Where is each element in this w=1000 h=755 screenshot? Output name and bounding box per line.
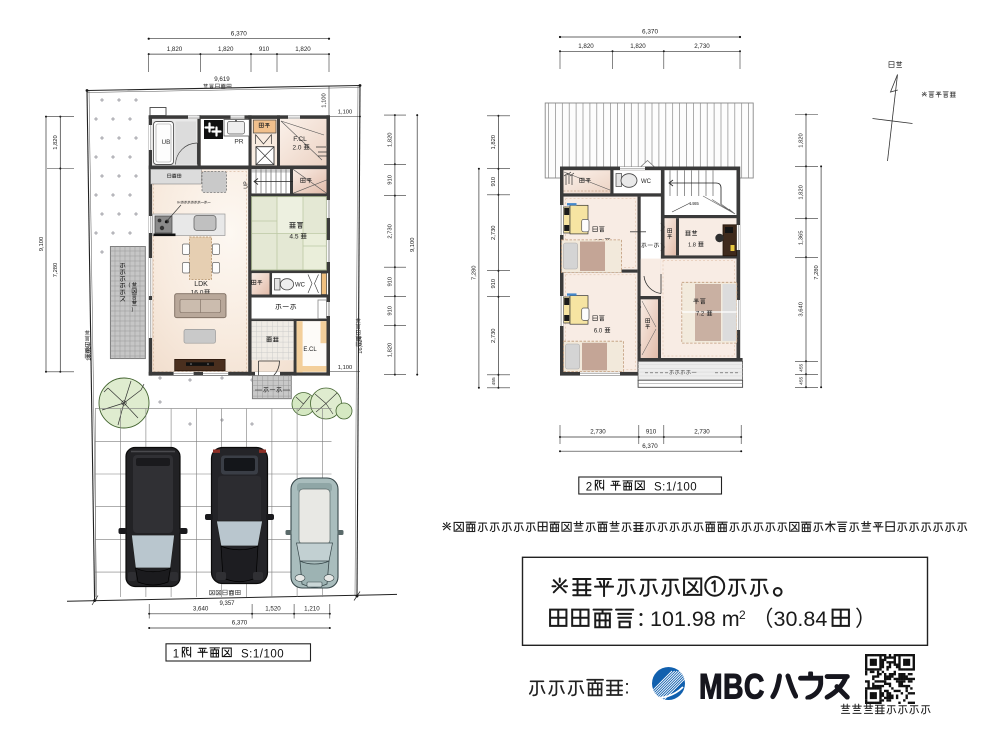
svg-text:E.CL: E.CL: [303, 347, 317, 353]
svg-text:2,730: 2,730: [491, 225, 497, 240]
svg-text:9,357: 9,357: [219, 601, 235, 607]
svg-text:1: 1: [173, 649, 179, 661]
svg-text:2,730: 2,730: [694, 43, 710, 50]
svg-text:WC: WC: [295, 283, 306, 289]
svg-text:IH: IH: [177, 200, 181, 204]
svg-text:1465: 1465: [689, 201, 699, 206]
svg-text:16,024: 16,024: [358, 335, 364, 354]
svg-text:1,100: 1,100: [338, 110, 353, 116]
svg-text:1,820: 1,820: [491, 135, 497, 150]
svg-text:1,820: 1,820: [167, 46, 183, 53]
svg-text:1,100: 1,100: [322, 93, 328, 108]
svg-text:F.CL: F.CL: [293, 136, 307, 143]
svg-text:(: (: [129, 283, 131, 289]
svg-text:6.0: 6.0: [594, 329, 603, 335]
svg-text:910: 910: [388, 175, 394, 185]
svg-text:1,820: 1,820: [630, 43, 646, 50]
svg-text:9,100: 9,100: [410, 238, 416, 253]
svg-text:1,365: 1,365: [799, 231, 805, 246]
svg-text:1,820: 1,820: [578, 43, 594, 50]
svg-text:101.98 m: 101.98 m: [650, 607, 740, 631]
svg-text:（30.84: （30.84: [752, 607, 827, 631]
svg-text:910: 910: [646, 429, 657, 436]
svg-text:455: 455: [799, 376, 805, 384]
svg-text:2: 2: [586, 482, 592, 494]
svg-text:1,820: 1,820: [388, 343, 394, 358]
svg-text:MBC: MBC: [699, 666, 765, 706]
svg-text:UP: UP: [244, 181, 250, 189]
svg-text:910: 910: [388, 277, 394, 287]
svg-text:3,640: 3,640: [193, 606, 209, 613]
svg-text:1,820: 1,820: [388, 132, 394, 147]
svg-text:2: 2: [739, 608, 746, 622]
svg-text:S:1/100: S:1/100: [654, 482, 697, 494]
svg-text:910: 910: [491, 279, 497, 289]
svg-text:1,820: 1,820: [295, 46, 311, 53]
svg-text:PR: PR: [234, 139, 243, 146]
svg-text:2,730: 2,730: [590, 429, 606, 436]
svg-text:910: 910: [388, 306, 394, 316]
svg-text:): ): [132, 307, 134, 313]
svg-text:910: 910: [259, 46, 270, 53]
svg-text:）: ）: [855, 607, 877, 631]
svg-text:6,370: 6,370: [232, 620, 248, 627]
svg-text:6,370: 6,370: [231, 31, 247, 38]
svg-text:18,024: 18,024: [87, 342, 93, 361]
svg-text:910: 910: [491, 177, 497, 187]
svg-text:2,730: 2,730: [388, 224, 394, 239]
svg-text:6,370: 6,370: [642, 443, 658, 450]
svg-text:7,280: 7,280: [472, 265, 478, 280]
svg-text:S:1/100: S:1/100: [241, 649, 284, 661]
svg-text:4.5: 4.5: [289, 234, 298, 241]
svg-text:1,520: 1,520: [265, 606, 281, 613]
svg-text:1,820: 1,820: [799, 185, 805, 200]
svg-text:2,730: 2,730: [694, 429, 710, 436]
svg-text:1,100: 1,100: [338, 365, 353, 371]
svg-text:UB: UB: [162, 139, 171, 146]
svg-text::: :: [624, 678, 629, 699]
svg-text:LDK: LDK: [194, 281, 208, 288]
svg-text:9,100: 9,100: [39, 237, 45, 252]
svg-text:WC: WC: [641, 179, 652, 185]
svg-text:1,820: 1,820: [218, 46, 234, 53]
svg-text:3,640: 3,640: [799, 302, 805, 317]
svg-text:2,730: 2,730: [491, 328, 497, 343]
svg-text:9,619: 9,619: [214, 76, 230, 83]
svg-text:7,280: 7,280: [814, 265, 820, 280]
svg-text:1,210: 1,210: [304, 606, 320, 613]
svg-text:1.8: 1.8: [688, 243, 696, 249]
svg-text:2.0: 2.0: [293, 145, 302, 152]
svg-text:455: 455: [799, 363, 805, 371]
svg-text:7.2: 7.2: [696, 312, 705, 318]
svg-text:1,820: 1,820: [53, 135, 59, 150]
svg-text:6,370: 6,370: [642, 29, 658, 36]
svg-text:7,280: 7,280: [53, 263, 59, 278]
svg-text:455: 455: [491, 377, 497, 385]
svg-text:1,820: 1,820: [799, 133, 805, 148]
